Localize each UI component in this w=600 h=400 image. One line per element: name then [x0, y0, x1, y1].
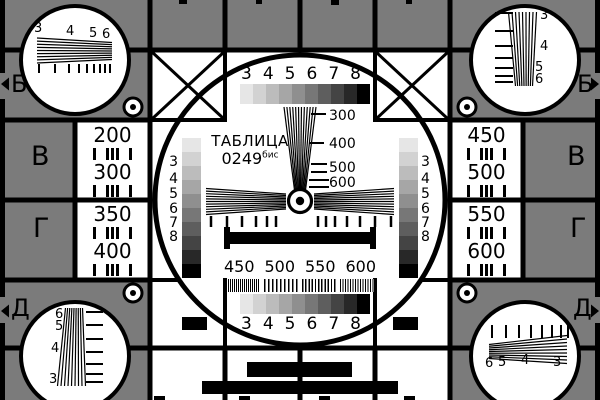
scale-number: 3: [241, 66, 252, 83]
grayscale-strip-right: [399, 138, 418, 278]
burst-label: 450: [224, 259, 255, 275]
panel-tick-pattern: [467, 148, 506, 160]
row-label-left-g: Г: [33, 215, 49, 242]
panel-value: 400: [93, 241, 131, 262]
panel-tick-pattern: [93, 148, 132, 160]
bottom-bar-short: [247, 362, 352, 377]
strip-scale-number: 4: [421, 172, 430, 186]
card-title: ТАБЛИЦА: [205, 134, 295, 149]
card-code-suffix: бис: [262, 151, 278, 161]
wedge-label: 500: [329, 161, 356, 175]
lower-grayscale-scale: 345678: [241, 316, 361, 333]
panel-tick-pattern: [467, 227, 506, 239]
panel-tick-pattern: [467, 264, 506, 276]
panel-tick-pattern: [93, 264, 132, 276]
right-panel-lower: 550 600: [452, 204, 521, 276]
wedge-numeral: 6: [485, 357, 493, 370]
grayscale-bar-bottom: [240, 294, 370, 314]
wedge-numeral: 3: [49, 373, 57, 386]
burst-label: 600: [345, 259, 376, 275]
panel-value: 550: [467, 204, 505, 225]
right-panel-upper: 450 500: [452, 124, 521, 198]
wedge-numeral: 5: [498, 356, 506, 369]
circle-top-right: [471, 6, 579, 114]
panel-value: 500: [467, 162, 505, 183]
wedge-numeral: 3: [540, 9, 548, 22]
burst-frequency-labels: 450500550600: [224, 259, 376, 275]
scale-number: 7: [328, 316, 339, 333]
burst-segment: [226, 279, 260, 292]
black-patch-left: [182, 317, 207, 330]
card-code: 0249бис: [205, 151, 295, 167]
test-card: ТАБЛИЦА 0249бис 345678 345678 4505005506…: [0, 0, 600, 400]
panel-value: 600: [467, 241, 505, 262]
strip-scale-number: 8: [421, 230, 430, 244]
panel-tick-pattern: [467, 185, 506, 197]
row-label-right-b: Б: [577, 72, 593, 96]
panel-tick-pattern: [93, 185, 132, 197]
strip-scale-number: 3: [421, 155, 430, 169]
grayscale-strip-left: [182, 138, 201, 278]
upper-grayscale-scale: 345678: [241, 66, 361, 83]
frequency-burst-bar: [226, 279, 374, 292]
wedge-numeral: 6: [102, 28, 110, 41]
strip-scale-number: 4: [164, 172, 178, 186]
card-code-number: 0249: [221, 149, 262, 168]
panel-value: 300: [93, 162, 131, 183]
scale-number: 8: [350, 66, 361, 83]
scale-number: 6: [306, 316, 317, 333]
wedge-numeral: 5: [89, 27, 97, 40]
wedge-label: 600: [329, 176, 356, 190]
strip-scale-number: 3: [164, 155, 178, 169]
panel-value: 200: [93, 125, 131, 146]
row-label-right-d: Д: [573, 296, 592, 320]
scale-number: 7: [328, 66, 339, 83]
wedge-numeral: 3: [34, 22, 42, 35]
wedge-numeral: 6: [535, 73, 543, 86]
row-label-left-d: Д: [11, 296, 30, 320]
bottom-bar-long: [202, 381, 398, 394]
panel-value: 450: [467, 125, 505, 146]
burst-segment: [302, 279, 336, 292]
scale-number: 4: [263, 316, 274, 333]
scale-number: 3: [241, 316, 252, 333]
strip-scale-number: 8: [164, 230, 178, 244]
strip-scale-number: 6: [421, 202, 430, 216]
wedge-numeral: 4: [51, 342, 59, 355]
card-graphics: [0, 0, 600, 400]
card-title-block: ТАБЛИЦА 0249бис: [205, 134, 295, 167]
black-patch-right: [393, 317, 418, 330]
burst-label: 550: [305, 259, 336, 275]
burst-segment: [340, 279, 374, 292]
strip-scale-number: 7: [164, 216, 178, 230]
wedge-label: 400: [329, 137, 356, 151]
wedge-numeral: 3: [553, 356, 561, 369]
burst-label: 500: [264, 259, 295, 275]
scale-number: 5: [285, 66, 296, 83]
left-panel-lower: 350 400: [78, 204, 147, 276]
strip-scale-number: 6: [164, 202, 178, 216]
panel-value: 350: [93, 204, 131, 225]
row-label-left-b: Б: [11, 72, 27, 96]
strip-scale-number: 5: [421, 187, 430, 201]
burst-segment: [264, 279, 298, 292]
row-label-right-g: Г: [570, 215, 586, 242]
wedge-numeral: 4: [66, 25, 74, 38]
row-label-left-v: В: [31, 143, 50, 170]
scale-number: 5: [285, 316, 296, 333]
scale-number: 8: [350, 316, 361, 333]
wedge-numeral: 4: [521, 354, 529, 367]
wedge-numeral: 4: [540, 40, 548, 53]
strip-scale-number: 5: [164, 187, 178, 201]
panel-tick-pattern: [93, 227, 132, 239]
scale-number: 4: [263, 66, 274, 83]
grayscale-bar-top: [240, 84, 370, 104]
strip-scale-number: 7: [421, 216, 430, 230]
scale-number: 6: [306, 66, 317, 83]
wedge-label: 300: [329, 109, 356, 123]
wedge-numeral: 5: [55, 320, 63, 333]
left-panel-upper: 200 300: [78, 124, 147, 198]
row-label-right-v: В: [567, 143, 586, 170]
